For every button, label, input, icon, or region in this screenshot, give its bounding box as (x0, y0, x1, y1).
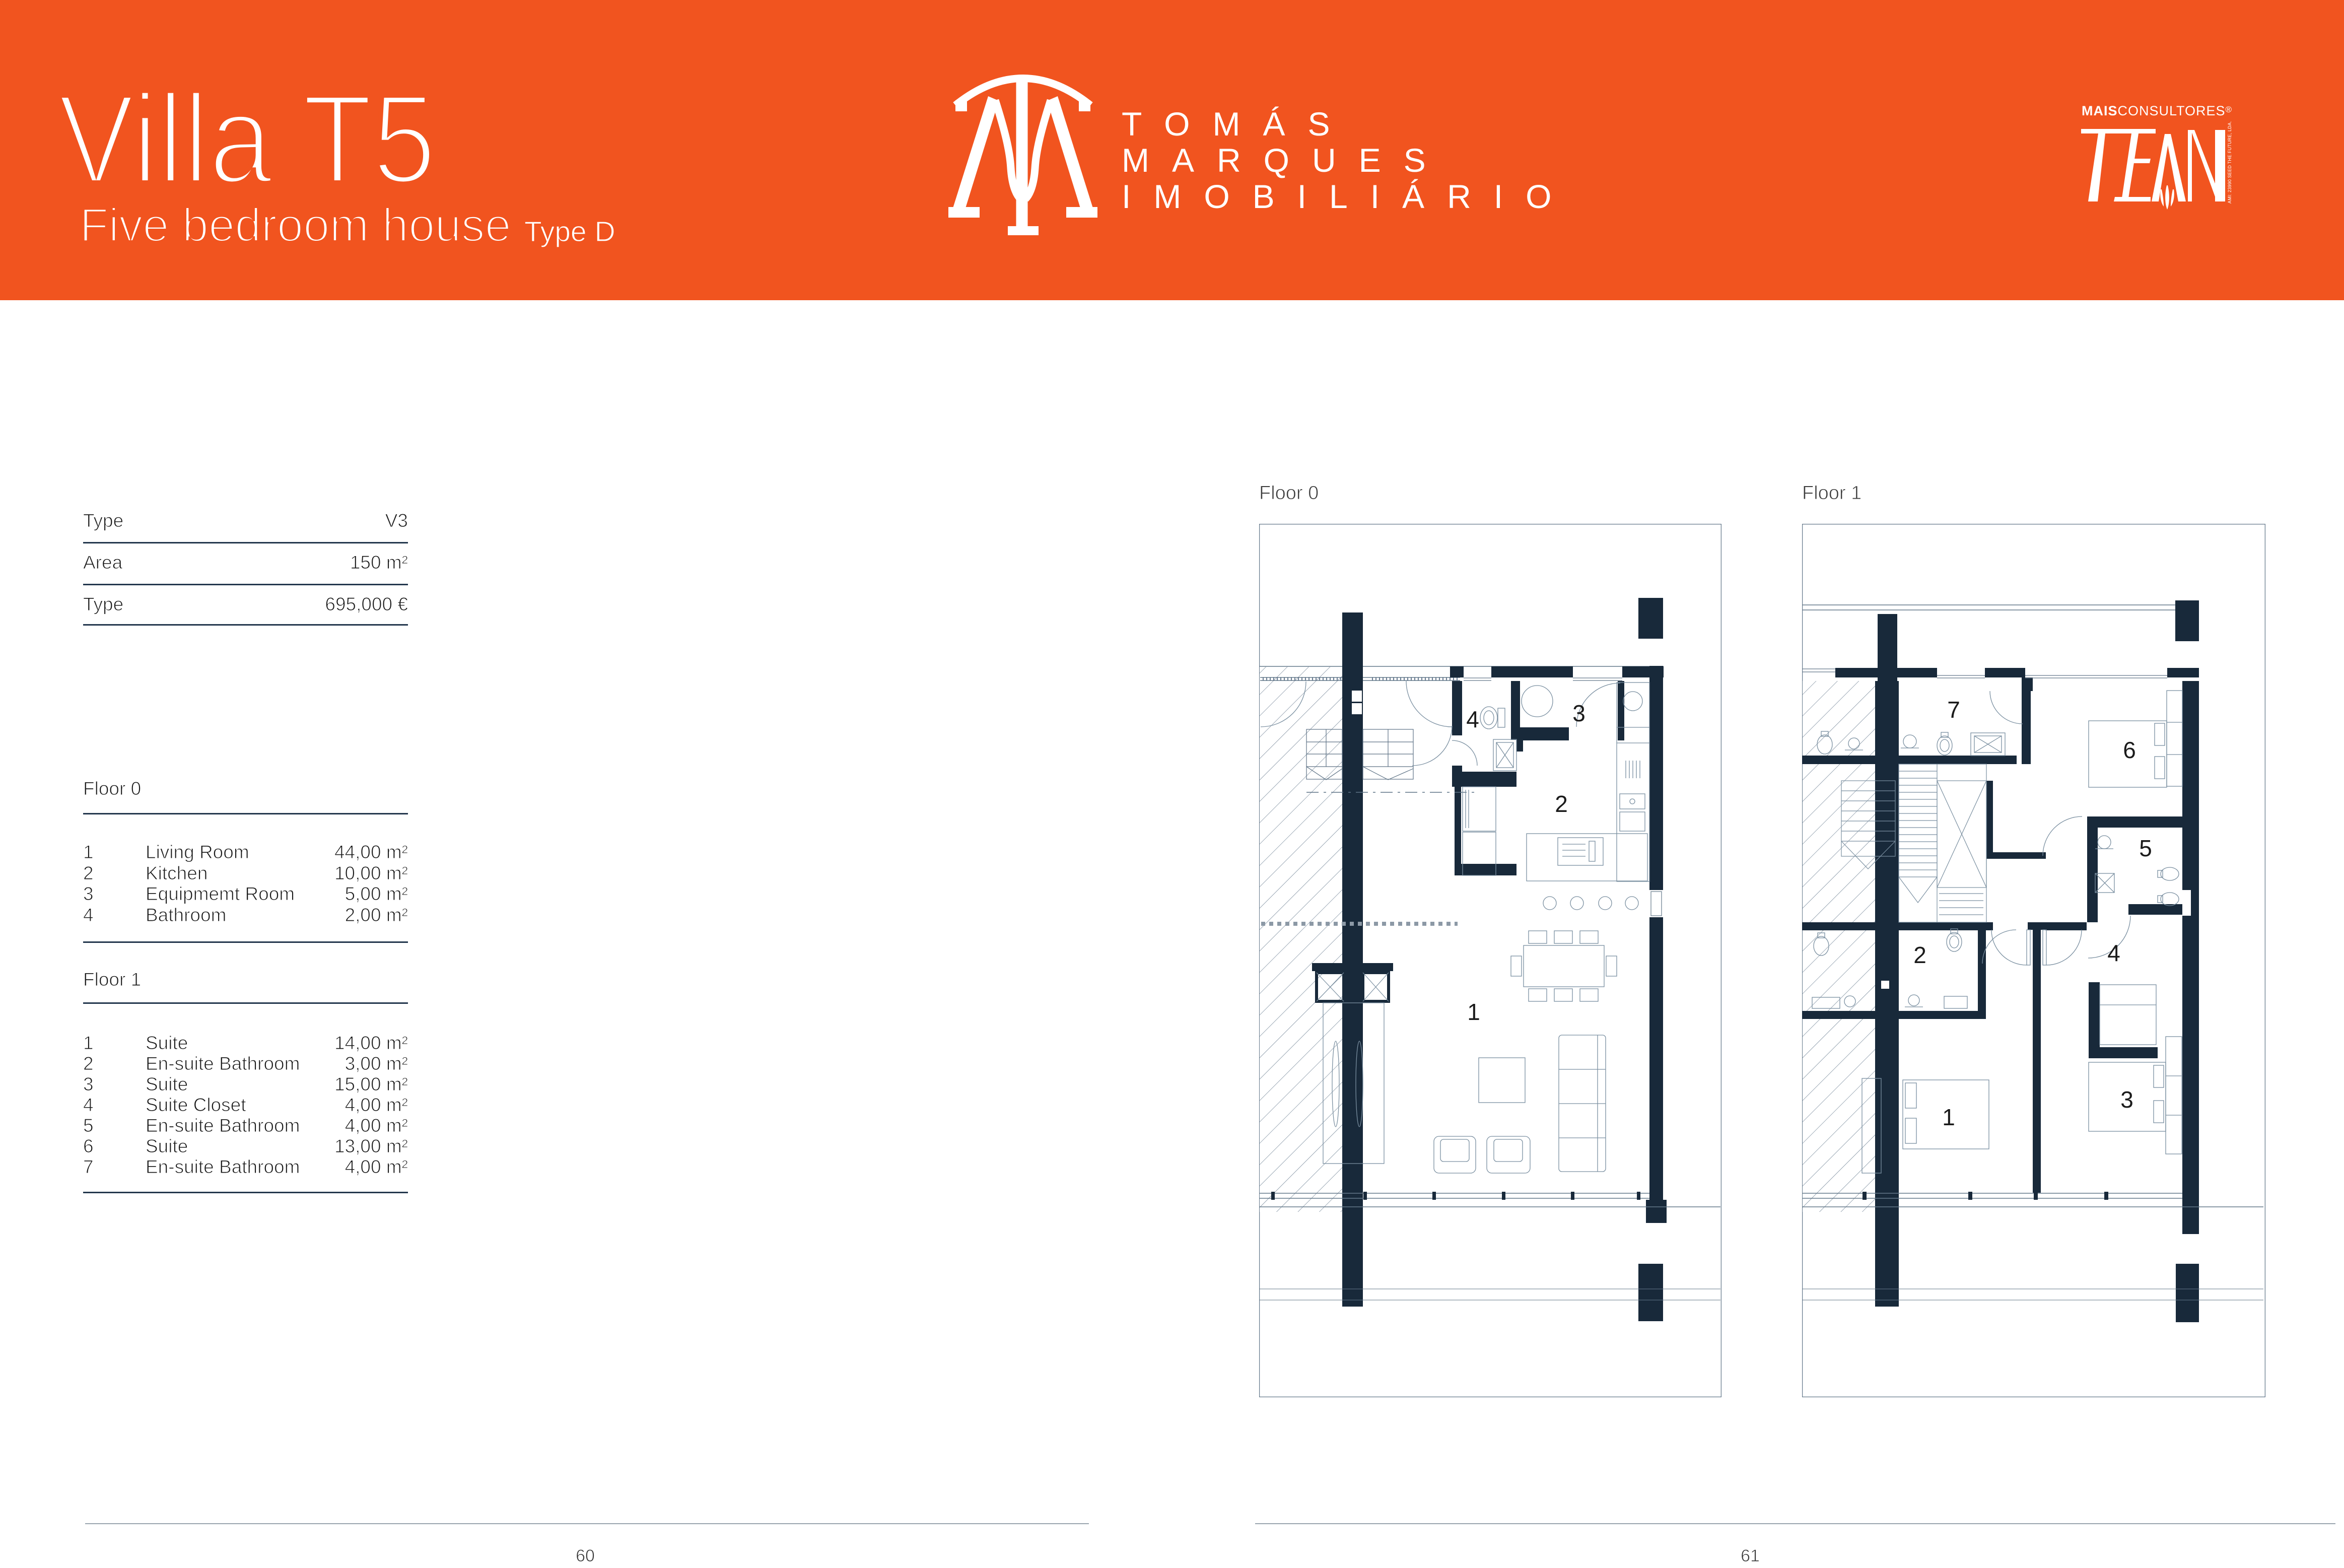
svg-text:1: 1 (1467, 999, 1480, 1025)
svg-text:7: 7 (1947, 697, 1960, 723)
svg-text:4: 4 (1466, 706, 1479, 732)
svg-text:3: 3 (1572, 700, 1585, 726)
svg-text:2: 2 (1555, 791, 1568, 817)
svg-text:1: 1 (1942, 1104, 1955, 1130)
svg-text:5: 5 (2139, 835, 2152, 861)
svg-text:4: 4 (2107, 940, 2120, 966)
svg-text:2: 2 (1913, 942, 1926, 968)
svg-text:3: 3 (2120, 1086, 2133, 1113)
svg-text:6: 6 (2123, 737, 2136, 763)
